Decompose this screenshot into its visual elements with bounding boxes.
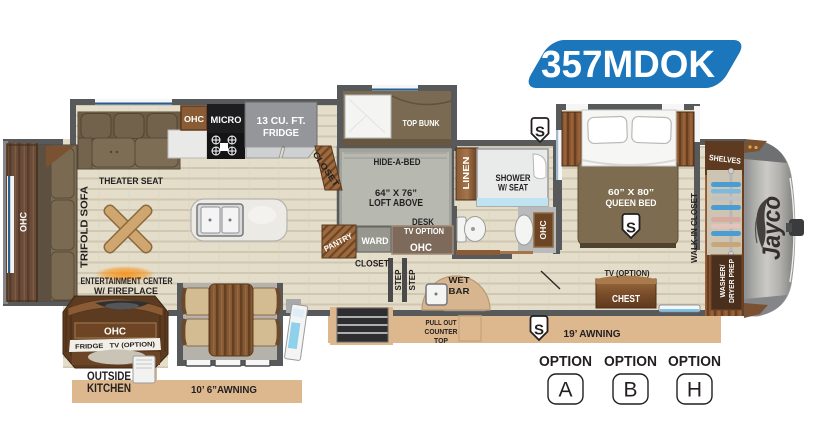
svg-text:OHC: OHC bbox=[104, 327, 126, 338]
svg-text:A: A bbox=[558, 379, 572, 402]
svg-text:60” X 80”: 60” X 80” bbox=[608, 187, 654, 197]
svg-text:OHC: OHC bbox=[184, 114, 204, 124]
svg-text:BAR: BAR bbox=[449, 286, 470, 296]
svg-text:PULL OUT: PULL OUT bbox=[426, 320, 458, 327]
svg-text:WASHER/: WASHER/ bbox=[720, 264, 727, 297]
svg-text:TOP: TOP bbox=[434, 338, 448, 345]
svg-text:THEATER SEAT: THEATER SEAT bbox=[99, 176, 163, 187]
svg-text:OUTSIDE: OUTSIDE bbox=[87, 371, 131, 383]
svg-text:OHC: OHC bbox=[539, 220, 548, 239]
svg-text:FRIDGE: FRIDGE bbox=[263, 127, 299, 139]
svg-text:HIDE-A-BED: HIDE-A-BED bbox=[374, 157, 421, 167]
svg-text:H: H bbox=[687, 379, 702, 402]
svg-text:STEP: STEP bbox=[393, 269, 403, 290]
svg-text:TV (OPTION): TV (OPTION) bbox=[605, 268, 650, 278]
svg-text:ENTERTAINMENT CENTER: ENTERTAINMENT CENTER bbox=[81, 276, 173, 286]
svg-text:STEP: STEP bbox=[407, 269, 417, 290]
svg-text:MICRO: MICRO bbox=[211, 115, 242, 126]
svg-text:357MDOK: 357MDOK bbox=[541, 44, 716, 86]
svg-text:DRYER PREP: DRYER PREP bbox=[729, 259, 736, 303]
svg-text:WARD: WARD bbox=[362, 236, 389, 247]
svg-text:TV OPTION: TV OPTION bbox=[404, 227, 444, 236]
svg-text:COUNTER: COUNTER bbox=[425, 329, 458, 336]
svg-text:10’ 6”AWNING: 10’ 6”AWNING bbox=[191, 384, 257, 396]
svg-text:19’ AWNING: 19’ AWNING bbox=[564, 329, 621, 340]
svg-text:SHOWER: SHOWER bbox=[496, 173, 531, 183]
svg-text:OHC: OHC bbox=[19, 212, 29, 233]
svg-text:W/ SEAT: W/ SEAT bbox=[498, 183, 528, 193]
svg-text:WET: WET bbox=[449, 275, 471, 285]
svg-text:WALK-IN CLOSET: WALK-IN CLOSET bbox=[689, 192, 699, 263]
svg-text:LOFT ABOVE: LOFT ABOVE bbox=[369, 198, 423, 209]
svg-text:TRIFOLD SOFA: TRIFOLD SOFA bbox=[80, 186, 91, 268]
svg-text:OHC: OHC bbox=[410, 242, 432, 254]
svg-text:CLOSET: CLOSET bbox=[355, 259, 389, 269]
svg-text:OPTION: OPTION bbox=[539, 353, 592, 370]
svg-text:KITCHEN: KITCHEN bbox=[87, 383, 131, 395]
svg-text:OPTION: OPTION bbox=[604, 353, 657, 370]
svg-text:LINEN: LINEN bbox=[462, 156, 471, 189]
svg-text:S: S bbox=[535, 124, 545, 141]
svg-text:OPTION: OPTION bbox=[668, 353, 721, 370]
svg-text:13 CU. FT.: 13 CU. FT. bbox=[257, 115, 306, 127]
svg-text:CHEST: CHEST bbox=[612, 294, 640, 305]
svg-text:B: B bbox=[623, 379, 637, 402]
svg-text:DESK: DESK bbox=[412, 217, 434, 227]
svg-text:TOP BUNK: TOP BUNK bbox=[403, 119, 440, 128]
svg-text:W/ FIREPLACE: W/ FIREPLACE bbox=[94, 286, 158, 296]
svg-text:QUEEN BED: QUEEN BED bbox=[606, 198, 657, 209]
